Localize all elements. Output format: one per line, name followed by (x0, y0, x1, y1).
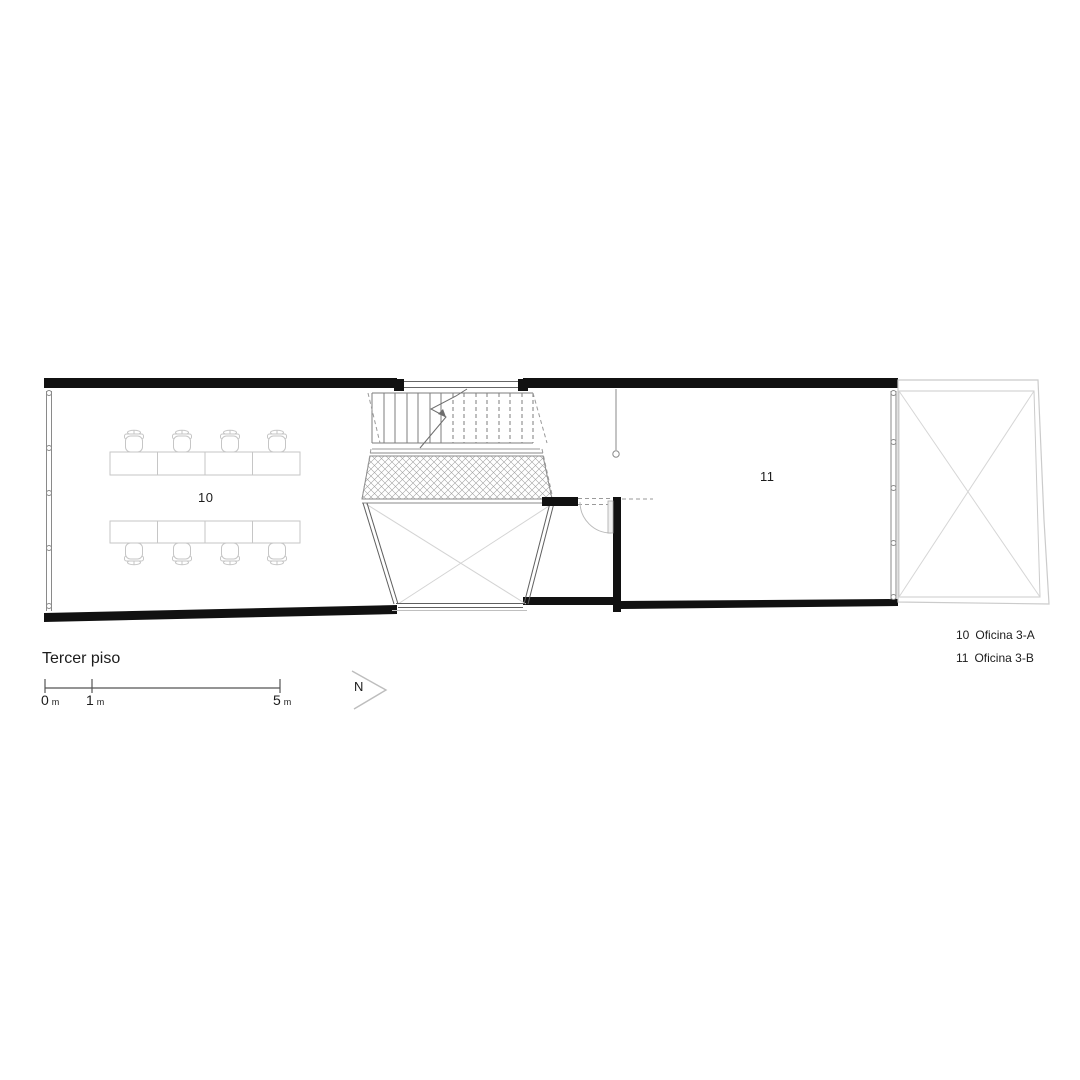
right-window-wall (891, 391, 896, 600)
legend-room-name: Oficina 3-B (974, 651, 1033, 665)
chair (268, 430, 287, 452)
legend-room-name: Oficina 3-A (975, 628, 1034, 642)
door-leaf (608, 501, 613, 533)
scale-value: 0 (41, 692, 49, 708)
legend-item: 10 Oficina 3-A (956, 628, 1035, 642)
room-label-10: 10 (198, 490, 213, 505)
interior-wall (613, 497, 621, 612)
chairs-upper-row (125, 430, 287, 452)
chairs-lower-row (125, 543, 287, 565)
stair-treads-hidden (453, 393, 533, 443)
chair (268, 543, 287, 565)
bottom-wall (44, 597, 898, 622)
void-opening (363, 503, 554, 608)
chair (173, 430, 192, 452)
scale-value: 5 (273, 692, 281, 708)
scale-unit: m (284, 697, 292, 707)
legend-item: 11 Oficina 3-B (956, 651, 1035, 665)
chair (125, 430, 144, 452)
chair (221, 430, 240, 452)
legend: 10 Oficina 3-A 11 Oficina 3-B (956, 628, 1035, 665)
door-swing-arc (580, 502, 611, 533)
floor-plan-sheet: 10 11 Tercer piso 10 Oficina 3-A 11 Ofic… (0, 0, 1080, 1080)
scale-unit: m (52, 697, 60, 707)
legend-room-number: 11 (956, 651, 968, 665)
plan-title: Tercer piso (42, 650, 120, 668)
chair (125, 543, 144, 565)
scale-bar (45, 679, 280, 693)
scale-value: 1 (86, 692, 94, 708)
north-arrow-label: N (354, 679, 363, 694)
chair (221, 543, 240, 565)
scale-unit: m (97, 697, 105, 707)
terrace-x-brace (899, 391, 1040, 597)
terrace-void (898, 380, 1049, 604)
left-window-wall (47, 391, 52, 612)
legend-room-number: 10 (956, 628, 969, 642)
landing-hatch (362, 449, 553, 503)
conference-table-upper (110, 452, 300, 475)
top-wall (44, 378, 898, 391)
staircase (368, 393, 547, 443)
top-wall-window-opening (404, 382, 518, 388)
scale-mark-0: 0 m (41, 692, 59, 708)
floor-plan-drawing (0, 0, 1080, 1080)
chair (173, 543, 192, 565)
stair-break-line (420, 389, 467, 448)
room-label-11: 11 (760, 469, 775, 484)
scale-mark-5: 5 m (273, 692, 291, 708)
door-jamb-wall (542, 497, 578, 506)
pendant-light (613, 389, 619, 457)
scale-mark-1: 1 m (86, 692, 104, 708)
conference-table-lower (110, 521, 300, 543)
